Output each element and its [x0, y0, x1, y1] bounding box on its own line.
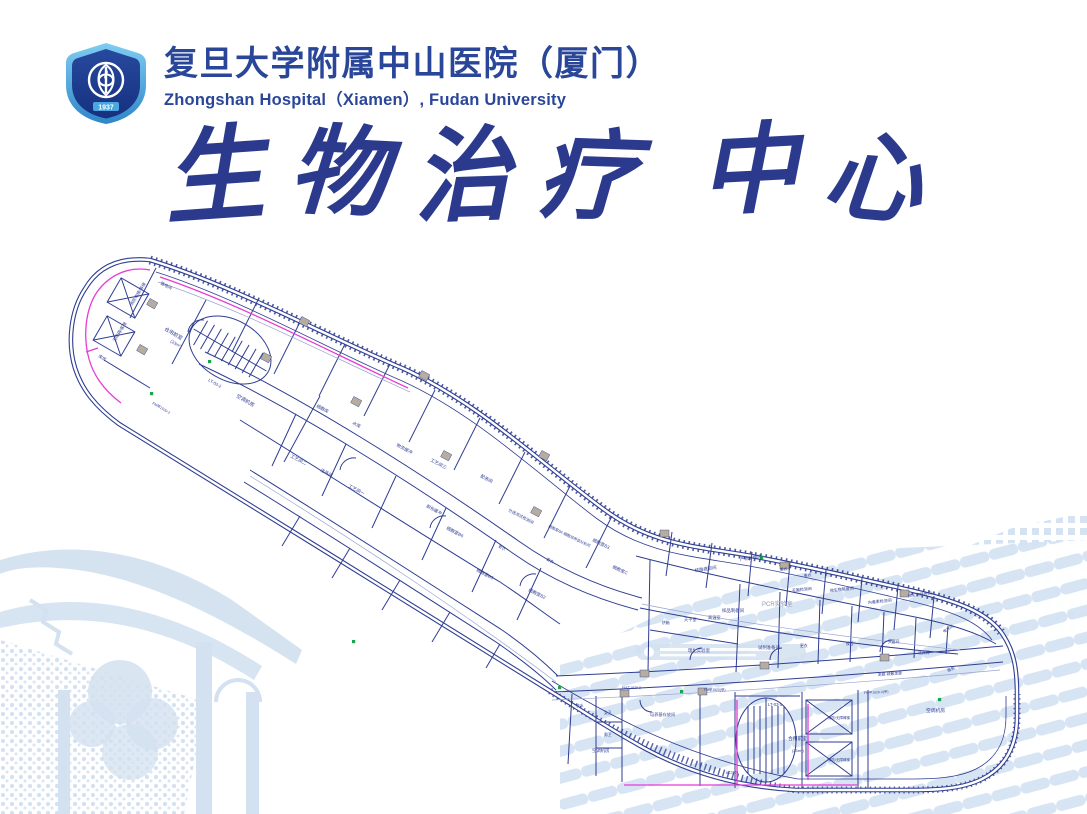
room-label: 天平室 [684, 616, 697, 623]
title-char: 心 [819, 126, 925, 232]
room-label: 烘箱 [662, 620, 670, 625]
room-label: 配液间 [479, 473, 494, 485]
hospital-name-cn: 复旦大学附属中山医院（厦门） [164, 46, 661, 83]
room-label: 空调机房 [926, 707, 945, 714]
room-label: 女卫 [604, 710, 612, 715]
room-label: 无障碍/客梯 [111, 321, 129, 343]
room-label: 男卫 [604, 732, 612, 737]
room-label: 高温室 [708, 614, 721, 621]
room-label: 细胞室B4·细胞培养皿分析间 [548, 523, 592, 548]
room-label: 工艺间一 [347, 483, 366, 498]
title-char: 中 [697, 120, 800, 223]
room-label: 脱包缓冲 [425, 503, 443, 517]
title-char: 疗 [536, 126, 637, 227]
room-label: 更衣 [800, 643, 808, 648]
main-title: 生物治疗中心 [0, 128, 1087, 226]
room-label: 细胞室B3 [591, 537, 611, 552]
logo-year: 1937 [98, 104, 114, 111]
room-label: 茶水 [576, 703, 584, 708]
room-label: 合用前室 [788, 735, 807, 742]
room-label: (25m²) [792, 748, 804, 753]
room-label: 理化实验室 [688, 647, 711, 654]
room-label: 细胞室B2 [527, 587, 547, 602]
room-label: LT-03-1 [768, 702, 783, 707]
title-char: 物 [287, 122, 390, 225]
room-label: 候检 [846, 641, 854, 646]
room-label: 洁具间 [918, 650, 930, 655]
room-label: 核酸提取间 [694, 564, 717, 574]
room-label: 细胞室B6 [445, 525, 465, 540]
room-label: FM乙1520-2 [622, 685, 641, 690]
temple-watermark [0, 549, 302, 814]
room-label: 更衣 [780, 566, 788, 572]
room-label: 培养基存放间 [650, 711, 675, 718]
room-label: 细胞室C [611, 563, 629, 576]
header: 1937 复旦大学附属中山医院（厦门） Zhongshan Hospital（X… [62, 40, 661, 126]
poster-page: 强电间消防电梯/客梯无障碍/客梯库房合用前室(23m²)LT-03-2FM甲15… [0, 0, 1087, 814]
room-label: 消防/无障碍梯 [828, 715, 850, 720]
room-label: 灭菌间 [888, 639, 900, 644]
room-label: FM甲1520(甲) [704, 688, 725, 692]
room-label: 样品制备间 [722, 607, 744, 614]
room-label: 分选流式检测间 [508, 507, 536, 525]
title-char: 生 [161, 122, 268, 233]
room-label: 物流缓冲 [395, 442, 414, 457]
room-label: 更衣 [804, 572, 812, 578]
hospital-logo: 1937 [62, 40, 150, 126]
room-label: 细胞库 [315, 403, 330, 416]
room-label: 工艺间二 [289, 453, 308, 468]
hospital-name-en: Zhongshan Hospital（Xiamen）, Fudan Univer… [164, 86, 661, 110]
room-label: 空调机房 [235, 393, 256, 409]
room-label: 水库 [351, 420, 363, 431]
room-label: PCR实验室 [762, 600, 793, 608]
room-label: 更衣 [498, 543, 507, 551]
room-label: 空调机房 [592, 747, 610, 754]
title-char: 治 [413, 124, 513, 229]
room-label: FM甲1520-2 [152, 401, 172, 415]
room-label: 消防/无障碍梯 [828, 757, 850, 762]
room-label: 试剂准备间 [758, 644, 780, 651]
